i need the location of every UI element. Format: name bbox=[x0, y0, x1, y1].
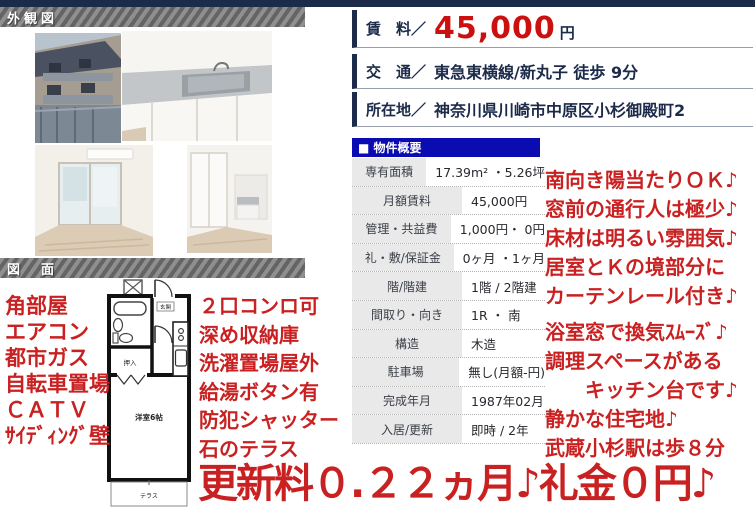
photo-building-exterior bbox=[35, 33, 121, 143]
overview-header: ■ 物件概要 bbox=[352, 138, 540, 157]
features-left-column: 角部屋 エアコン 都市ガス 自転車置場 ＣＡＴＶ ｻｲﾃﾞｨﾝｸﾞ壁 bbox=[5, 293, 110, 449]
row-value: 1R ・ 南 bbox=[462, 301, 545, 329]
row-label: 管理・共益費 bbox=[352, 215, 451, 243]
table-row: 入居/更新 即時 / 2年 bbox=[352, 415, 545, 444]
feature-line: 自転車置場 bbox=[5, 371, 110, 397]
row-value: 無し(月額-円) bbox=[459, 358, 545, 386]
address-value: 神奈川県川崎市中原区小杉御殿町2 bbox=[434, 97, 685, 121]
feature-line: 床材は明るい雰囲気♪ bbox=[545, 224, 738, 253]
floorplan-oshiire-label: 押入 bbox=[124, 358, 138, 367]
address-label: 所在地／ bbox=[366, 99, 426, 120]
overview-title: ■ 物件概要 bbox=[358, 139, 422, 156]
rent-label: 賃 料／ bbox=[366, 18, 426, 39]
row-label: 礼・敷/保証金 bbox=[352, 244, 454, 272]
row-value: 1,000円・ 0円 bbox=[451, 215, 545, 243]
section-bar-floorplan-label: 図 面 bbox=[7, 259, 58, 278]
feature-line: 都市ガス bbox=[5, 345, 110, 371]
feature-line: 南向き陽当たりＯＫ♪ bbox=[545, 166, 738, 195]
section-bar-floorplan: 図 面 bbox=[0, 258, 305, 278]
feature-line: 調理スペースがある bbox=[545, 347, 738, 376]
photo-room-window bbox=[35, 145, 153, 256]
row-label: 階/階建 bbox=[352, 272, 462, 300]
table-row: 間取り・向き 1R ・ 南 bbox=[352, 301, 545, 330]
access-value: 東急東横線/新丸子 徒歩 9分 bbox=[434, 59, 638, 83]
table-row: 管理・共益費 1,000円・ 0円 bbox=[352, 215, 545, 244]
address-row: 所在地／ 神奈川県川崎市中原区小杉御殿町2 bbox=[352, 92, 753, 127]
access-row: 交 通／ 東急東横線/新丸子 徒歩 9分 bbox=[352, 54, 753, 89]
section-bar-exterior-label: 外観図 bbox=[7, 8, 58, 27]
feature-line: ２口コンロ可 bbox=[199, 292, 339, 321]
table-row: 月額賃料 45,000円 bbox=[352, 187, 545, 216]
row-value: 即時 / 2年 bbox=[462, 415, 545, 443]
section-bar-exterior: 外観図 bbox=[0, 7, 305, 27]
row-label: 駐車場 bbox=[352, 358, 459, 386]
feature-line: 洗濯置場屋外 bbox=[199, 349, 339, 378]
feature-line: 窓前の通行人は極少♪ bbox=[545, 195, 738, 224]
top-divider-bar bbox=[0, 0, 755, 7]
row-label: 入居/更新 bbox=[352, 415, 462, 443]
rent-row: 賃 料／ 45,000 円 bbox=[352, 10, 753, 48]
feature-line: 石のテラス bbox=[199, 435, 339, 464]
feature-line: 浴室窓で換気ｽﾑｰｽﾞ♪ bbox=[545, 318, 738, 347]
row-value: 木造 bbox=[462, 330, 545, 358]
row-label: 完成年月 bbox=[352, 387, 462, 415]
table-row: 構造 木造 bbox=[352, 330, 545, 359]
renewal-fee-banner: 更新料０.２２ヵ月♪礼金０円♪ bbox=[198, 460, 714, 508]
feature-line: カーテンレール付き♪ bbox=[545, 282, 738, 311]
feature-line: 静かな住宅地♪ bbox=[545, 405, 738, 434]
table-row: 礼・敷/保証金 0ヶ月 ・1ヶ月 bbox=[352, 244, 545, 273]
feature-line: 防犯シャッター bbox=[199, 406, 339, 435]
features-right-column: 南向き陽当たりＯＫ♪ 窓前の通行人は極少♪ 床材は明るい雰囲気♪ 居室とＫの境部… bbox=[545, 166, 738, 463]
feature-line: 武蔵小杉駅は歩８分 bbox=[545, 434, 738, 463]
table-row: 階/階建 1階 / 2階建 bbox=[352, 272, 545, 301]
photo-kitchen bbox=[122, 31, 272, 141]
rent-unit: 円 bbox=[560, 22, 575, 43]
floorplan-drawing: 玄関 押入 洋室6帖 テラス bbox=[97, 276, 207, 516]
row-label: 月額賃料 bbox=[352, 187, 462, 215]
table-row: 専有面積 17.39m² ・5.26坪 bbox=[352, 158, 545, 187]
feature-line: 深め収納庫 bbox=[199, 321, 339, 350]
row-label: 専有面積 bbox=[352, 158, 426, 186]
floorplan-terrace-label: テラス bbox=[140, 493, 158, 500]
photo-room-closet bbox=[187, 145, 272, 253]
feature-line: キッチン台です♪ bbox=[545, 376, 738, 405]
feature-line: エアコン bbox=[5, 319, 110, 345]
table-row: 完成年月 1987年02月 bbox=[352, 387, 545, 416]
rent-value: 45,000 bbox=[434, 14, 556, 44]
floorplan-room-label: 洋室6帖 bbox=[135, 412, 163, 422]
feature-line: 居室とＫの境部分に bbox=[545, 253, 738, 282]
overview-table: 専有面積 17.39m² ・5.26坪 月額賃料 45,000円 管理・共益費 … bbox=[352, 158, 545, 444]
feature-line: ｻｲﾃﾞｨﾝｸﾞ壁 bbox=[5, 423, 110, 449]
row-value: 1階 / 2階建 bbox=[462, 272, 545, 300]
washing-machine-symbol bbox=[124, 280, 142, 295]
features-middle-column: ２口コンロ可 深め収納庫 洗濯置場屋外 給湯ボタン有 防犯シャッター 石のテラス bbox=[199, 292, 339, 463]
floorplan-genkan-label: 玄関 bbox=[160, 303, 172, 311]
row-value: 45,000円 bbox=[462, 187, 545, 215]
row-value: 1987年02月 bbox=[462, 387, 545, 415]
row-value: 0ヶ月 ・1ヶ月 bbox=[454, 244, 545, 272]
feature-line: 給湯ボタン有 bbox=[199, 378, 339, 407]
feature-line: 角部屋 bbox=[5, 293, 110, 319]
access-label: 交 通／ bbox=[366, 61, 426, 82]
feature-line: ＣＡＴＶ bbox=[5, 397, 110, 423]
table-row: 駐車場 無し(月額-円) bbox=[352, 358, 545, 387]
row-value: 17.39m² ・5.26坪 bbox=[426, 158, 545, 186]
row-label: 間取り・向き bbox=[352, 301, 462, 329]
row-label: 構造 bbox=[352, 330, 462, 358]
